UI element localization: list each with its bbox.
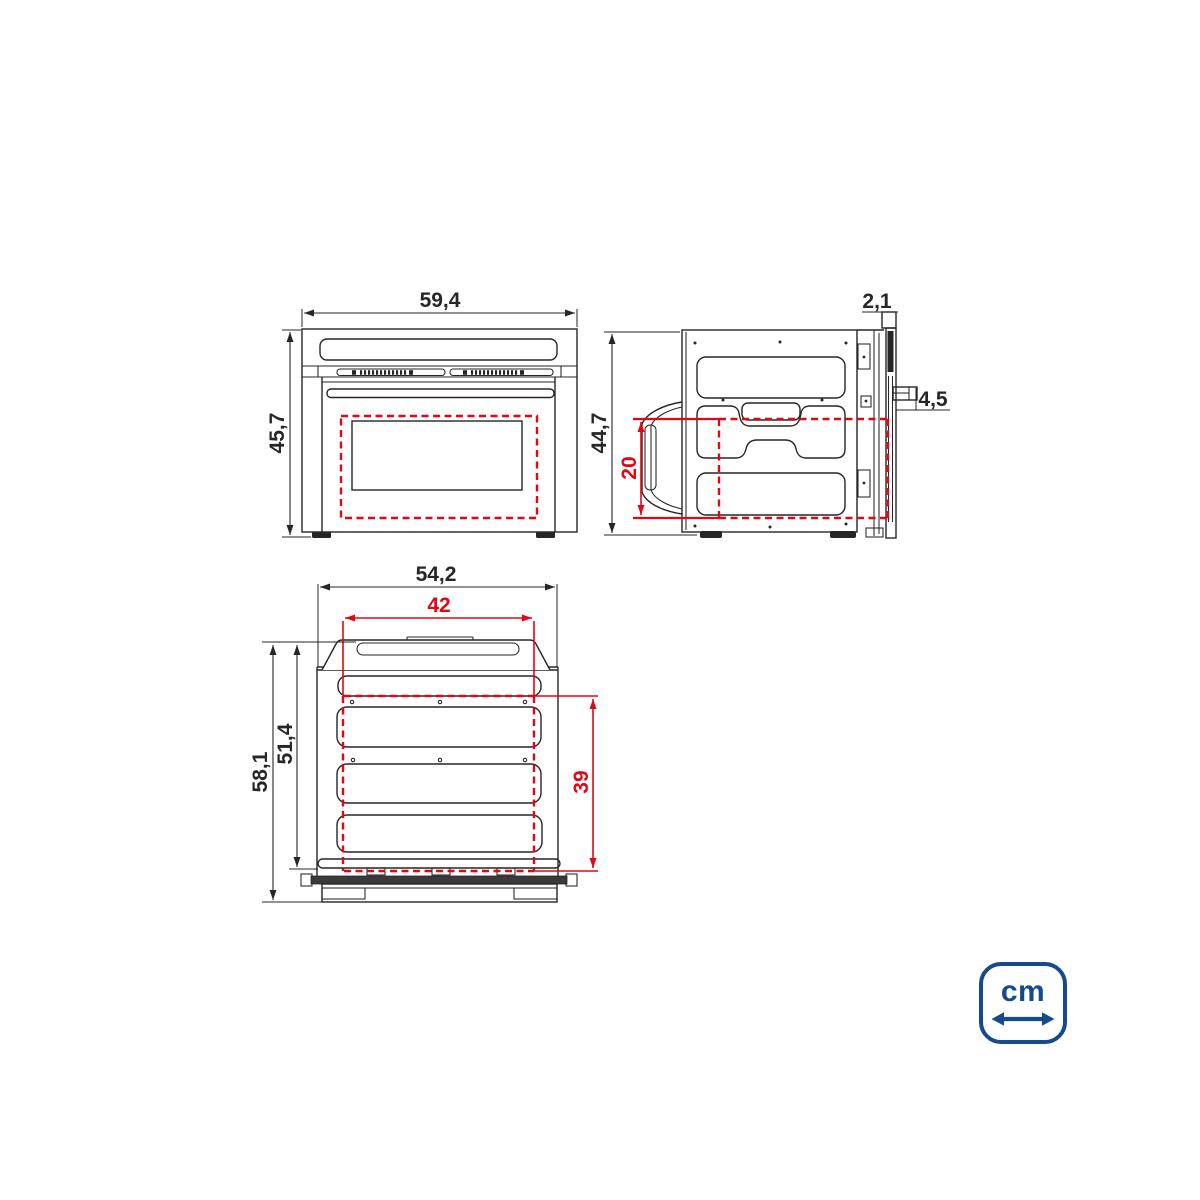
- door-seal-strip: [888, 331, 894, 372]
- top-screw-holes: [350, 700, 526, 761]
- door-window: [352, 421, 522, 490]
- front-width-dim-label: 59,4: [420, 289, 461, 312]
- top-rear-edge: [301, 859, 577, 902]
- top-dark-strip: [311, 876, 567, 884]
- front-height-dimension: 45,7: [266, 330, 311, 537]
- side-door-thickness-dimension: 2,1: [862, 290, 898, 313]
- top-width-dim-label: 54,2: [416, 563, 457, 586]
- unit-label: cm: [1001, 977, 1045, 1007]
- side-front-frame: [857, 332, 871, 530]
- front-width-dimension: 59,4: [302, 289, 577, 327]
- technical-drawing-page: 59,4 45,7: [0, 0, 1200, 1200]
- unit-badge: cm: [979, 962, 1067, 1044]
- side-height-dim-label: 44,7: [588, 413, 611, 454]
- top-view: 42 39 54,2 58,1 51,4: [249, 563, 598, 902]
- double-arrow-icon: [990, 1008, 1056, 1030]
- handle-depth-dim-label: 4,5: [918, 388, 948, 411]
- top-niche-width-dim-label: 42: [427, 594, 450, 617]
- top-body-outline: [317, 667, 558, 876]
- top-total-depth-dimension: 58,1: [249, 642, 356, 902]
- top-body-depth-dimension: 51,4: [274, 645, 318, 869]
- front-view: 59,4 45,7: [266, 289, 577, 538]
- front-vent-slots: [352, 370, 524, 375]
- top-niche-depth-dim-label: 39: [570, 770, 593, 793]
- side-niche-height-dim-label: 20: [618, 456, 641, 479]
- top-stamped-panels: [337, 676, 542, 852]
- top-front-fascia: [322, 637, 550, 670]
- front-body-outline: [302, 329, 577, 532]
- front-niche-dashed-outline: [341, 416, 537, 518]
- front-height-dim-label: 45,7: [266, 413, 289, 454]
- side-view: 20 44,7 2,1 4,5: [588, 290, 950, 538]
- top-total-depth-dim-label: 58,1: [249, 751, 272, 792]
- top-niche-red-annotation: 42 39: [343, 594, 598, 871]
- door-handle: [327, 389, 554, 398]
- front-door: [322, 377, 555, 532]
- side-door: [866, 312, 917, 538]
- door-thickness-dim-label: 2,1: [862, 290, 892, 313]
- top-body-depth-dim-label: 51,4: [274, 723, 297, 764]
